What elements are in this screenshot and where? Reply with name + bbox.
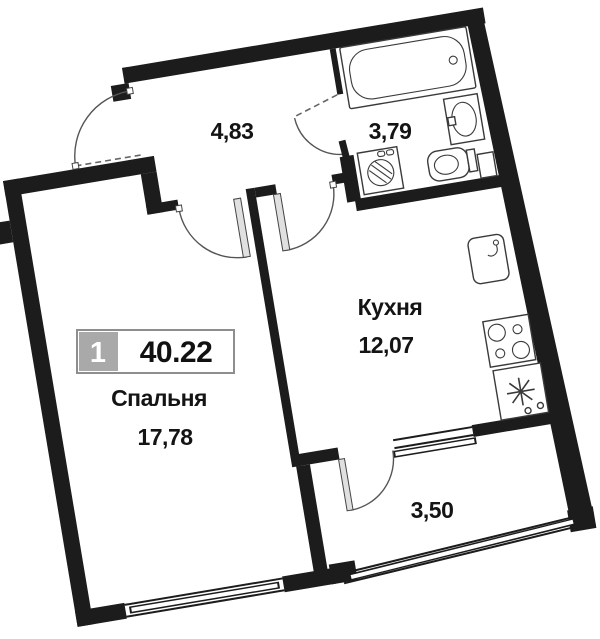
entrance-door [61, 87, 144, 169]
bathroom-threshold [294, 95, 340, 116]
bathroom-area-label: 3,79 [369, 118, 412, 144]
hallway-area-label: 4,83 [211, 118, 254, 144]
door-stop [175, 205, 182, 212]
balcony-door-leaf [339, 459, 354, 511]
wall-bottom-right-block [282, 568, 336, 592]
bedroom-door [175, 195, 250, 267]
wall-balcony-partition-left [294, 448, 339, 467]
vent-duct [477, 152, 497, 178]
washing-machine-icon [357, 147, 403, 195]
bedroom-door-leaf [234, 198, 251, 257]
badge-total-area: 40.22 [140, 336, 213, 369]
bedroom-window [125, 578, 285, 616]
wall-left [3, 178, 93, 626]
kitchen-door-leaf [273, 194, 289, 251]
balcony-door [339, 450, 402, 510]
stove-icon [483, 314, 536, 367]
bedroom-area-label: 17,78 [137, 424, 193, 450]
door-stop [126, 87, 133, 94]
kitchen-door [273, 181, 346, 251]
wall-partition-bedroom-kitchen [246, 188, 301, 468]
kitchen-name-label: Кухня [358, 294, 423, 320]
plan-geometry [0, 3, 599, 630]
door-stop [330, 181, 337, 188]
wall-balcony-left [296, 464, 328, 573]
kitchen-balcony-window [391, 427, 476, 455]
wall-top-left [3, 156, 157, 197]
apartment-badge: 1 40.22 [77, 330, 234, 373]
entrance-door-arc [65, 91, 141, 166]
balcony-glazing [339, 515, 584, 583]
bedroom-name-label: Спальня [111, 385, 207, 411]
wash-basin-icon [444, 94, 485, 145]
bathroom-door-arc [295, 111, 348, 162]
kitchen-area-label: 12,07 [358, 332, 413, 358]
kitchen-sink-icon [467, 233, 510, 284]
toilet-icon [426, 145, 478, 183]
balcony-area-label: 3,50 [411, 497, 454, 523]
floor-plan: 4,83 3,79 Кухня 12,07 1 40.22 Спальня 17… [0, 0, 600, 639]
fridge-icon [493, 363, 549, 420]
door-stop [72, 162, 79, 169]
floor-plan-canvas: 4,83 3,79 Кухня 12,07 1 40.22 Спальня 17… [0, 0, 600, 639]
badge-number: 1 [90, 337, 106, 369]
